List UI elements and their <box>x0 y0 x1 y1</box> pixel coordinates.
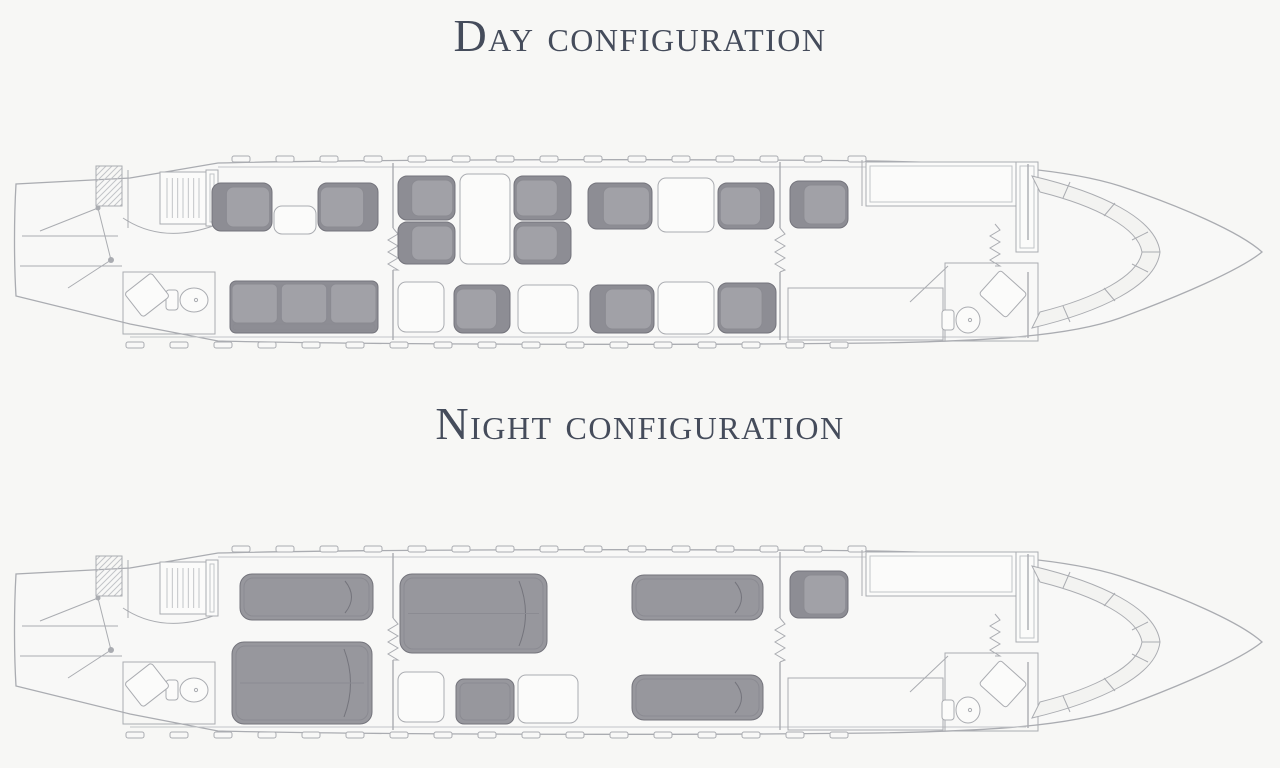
fwd-club-seat-fwd-lower <box>718 283 776 333</box>
fwd-club-table-lower <box>658 282 714 334</box>
cabin-window <box>628 156 646 162</box>
crew-seat <box>790 571 848 618</box>
cabin-window <box>654 732 672 738</box>
aft-cabin-side-table <box>274 206 316 234</box>
galley-cabinet <box>1016 162 1038 252</box>
cabin-window <box>830 732 848 738</box>
mid-cabin-double-berth <box>400 574 547 653</box>
aft-cabin-seat-right <box>318 183 378 231</box>
airstair-hub <box>108 257 114 263</box>
cabin-window <box>390 732 408 738</box>
mid-cabin-ottoman <box>456 679 514 724</box>
galley-counter <box>866 552 1016 596</box>
crew-seat <box>790 181 848 228</box>
night-configuration-title: Night configuration <box>0 400 1280 448</box>
conference-seat-fwd-outboard <box>514 176 571 220</box>
cabin-window <box>258 342 276 348</box>
baggage-door-hatch <box>96 166 122 206</box>
cabin-window <box>584 546 602 552</box>
cabin-window <box>522 732 540 738</box>
cabin-window <box>126 342 144 348</box>
aft-divan-3-seats <box>230 281 378 333</box>
wardrobe <box>160 172 206 224</box>
cabin-window <box>452 546 470 552</box>
cabin-window <box>232 156 250 162</box>
entry-console <box>206 560 218 616</box>
cabin-window <box>232 546 250 552</box>
cabin-window <box>610 732 628 738</box>
aft-toilet <box>166 678 208 702</box>
night-configuration-floorplan <box>10 538 1270 753</box>
cabin-window <box>302 342 320 348</box>
cabin-window <box>364 546 382 552</box>
conference-table <box>460 174 510 264</box>
cabin-window <box>540 156 558 162</box>
mid-credenza <box>518 285 578 333</box>
fwd-toilet <box>942 697 980 723</box>
cabin-window <box>478 732 496 738</box>
cabin-window <box>408 156 426 162</box>
cabin-window <box>434 342 452 348</box>
cabin-window <box>258 732 276 738</box>
conference-seat-fwd-inboard <box>514 222 571 264</box>
fwd-toilet <box>942 307 980 333</box>
aircraft-cabin-configuration-diagram: Day configuration Night configuration <box>0 0 1280 768</box>
cabin-window <box>320 546 338 552</box>
cabin-window <box>742 342 760 348</box>
cabin-window <box>760 546 778 552</box>
cabin-window <box>830 342 848 348</box>
cabin-window <box>786 342 804 348</box>
cabin-window <box>434 732 452 738</box>
cabin-window <box>478 342 496 348</box>
cabin-window <box>804 546 822 552</box>
conference-seat-aft-outboard <box>398 176 455 220</box>
fwd-club-seat-aft-upper <box>588 183 652 229</box>
fwd-club-table-upper <box>658 178 714 232</box>
cabin-window <box>698 732 716 738</box>
baggage-door-hatch <box>96 556 122 596</box>
cabin-window <box>170 732 188 738</box>
cabin-window <box>584 156 602 162</box>
cabin-window <box>496 546 514 552</box>
cabin-window <box>848 156 866 162</box>
day-configuration-title: Day configuration <box>0 12 1280 60</box>
airstair-hub <box>108 647 114 653</box>
cabin-window <box>716 156 734 162</box>
cabin-window <box>654 342 672 348</box>
cabin-window <box>742 732 760 738</box>
cabin-window <box>566 342 584 348</box>
cabin-window <box>276 156 294 162</box>
mid-cabin-seat <box>454 285 510 333</box>
galley-cabinet <box>1016 552 1038 642</box>
cabin-window <box>170 342 188 348</box>
day-configuration-floorplan <box>10 148 1270 363</box>
cabin-window <box>390 342 408 348</box>
cabin-window <box>126 732 144 738</box>
cabin-window <box>452 156 470 162</box>
cabin-window <box>346 732 364 738</box>
fwd-club-seat-aft-lower <box>590 285 654 333</box>
fwd-club-seat-fwd-upper <box>718 183 774 229</box>
cabin-window <box>786 732 804 738</box>
fwd-cabin-berth-upper <box>632 575 763 620</box>
airstair-hinge <box>96 596 101 601</box>
cabin-window <box>408 546 426 552</box>
aft-side-table <box>398 672 444 722</box>
cabin-window <box>566 732 584 738</box>
cabin-window <box>276 546 294 552</box>
aft-side-table <box>398 282 444 332</box>
galley-counter <box>866 162 1016 206</box>
cabin-window <box>760 156 778 162</box>
conference-seat-aft-inboard <box>398 222 455 264</box>
wardrobe <box>160 562 206 614</box>
cabin-window <box>628 546 646 552</box>
cabin-window <box>848 546 866 552</box>
aft-toilet <box>166 288 208 312</box>
cabin-window <box>496 156 514 162</box>
cabin-window <box>698 342 716 348</box>
mid-credenza <box>518 675 578 723</box>
cabin-window <box>672 546 690 552</box>
cabin-window <box>320 156 338 162</box>
cabin-window <box>672 156 690 162</box>
cabin-window <box>214 342 232 348</box>
aft-cabin-berth-lower <box>232 642 372 724</box>
cabin-window <box>364 156 382 162</box>
cabin-window <box>214 732 232 738</box>
cabin-window <box>522 342 540 348</box>
cabin-window <box>302 732 320 738</box>
aft-cabin-berth-upper <box>240 574 373 620</box>
fwd-cabin-berth-lower <box>632 675 763 720</box>
cabin-window <box>804 156 822 162</box>
cabin-window <box>540 546 558 552</box>
cabin-window <box>346 342 364 348</box>
cabin-window <box>610 342 628 348</box>
airstair-hinge <box>96 206 101 211</box>
aft-cabin-seat-left <box>212 183 272 231</box>
cabin-window <box>716 546 734 552</box>
